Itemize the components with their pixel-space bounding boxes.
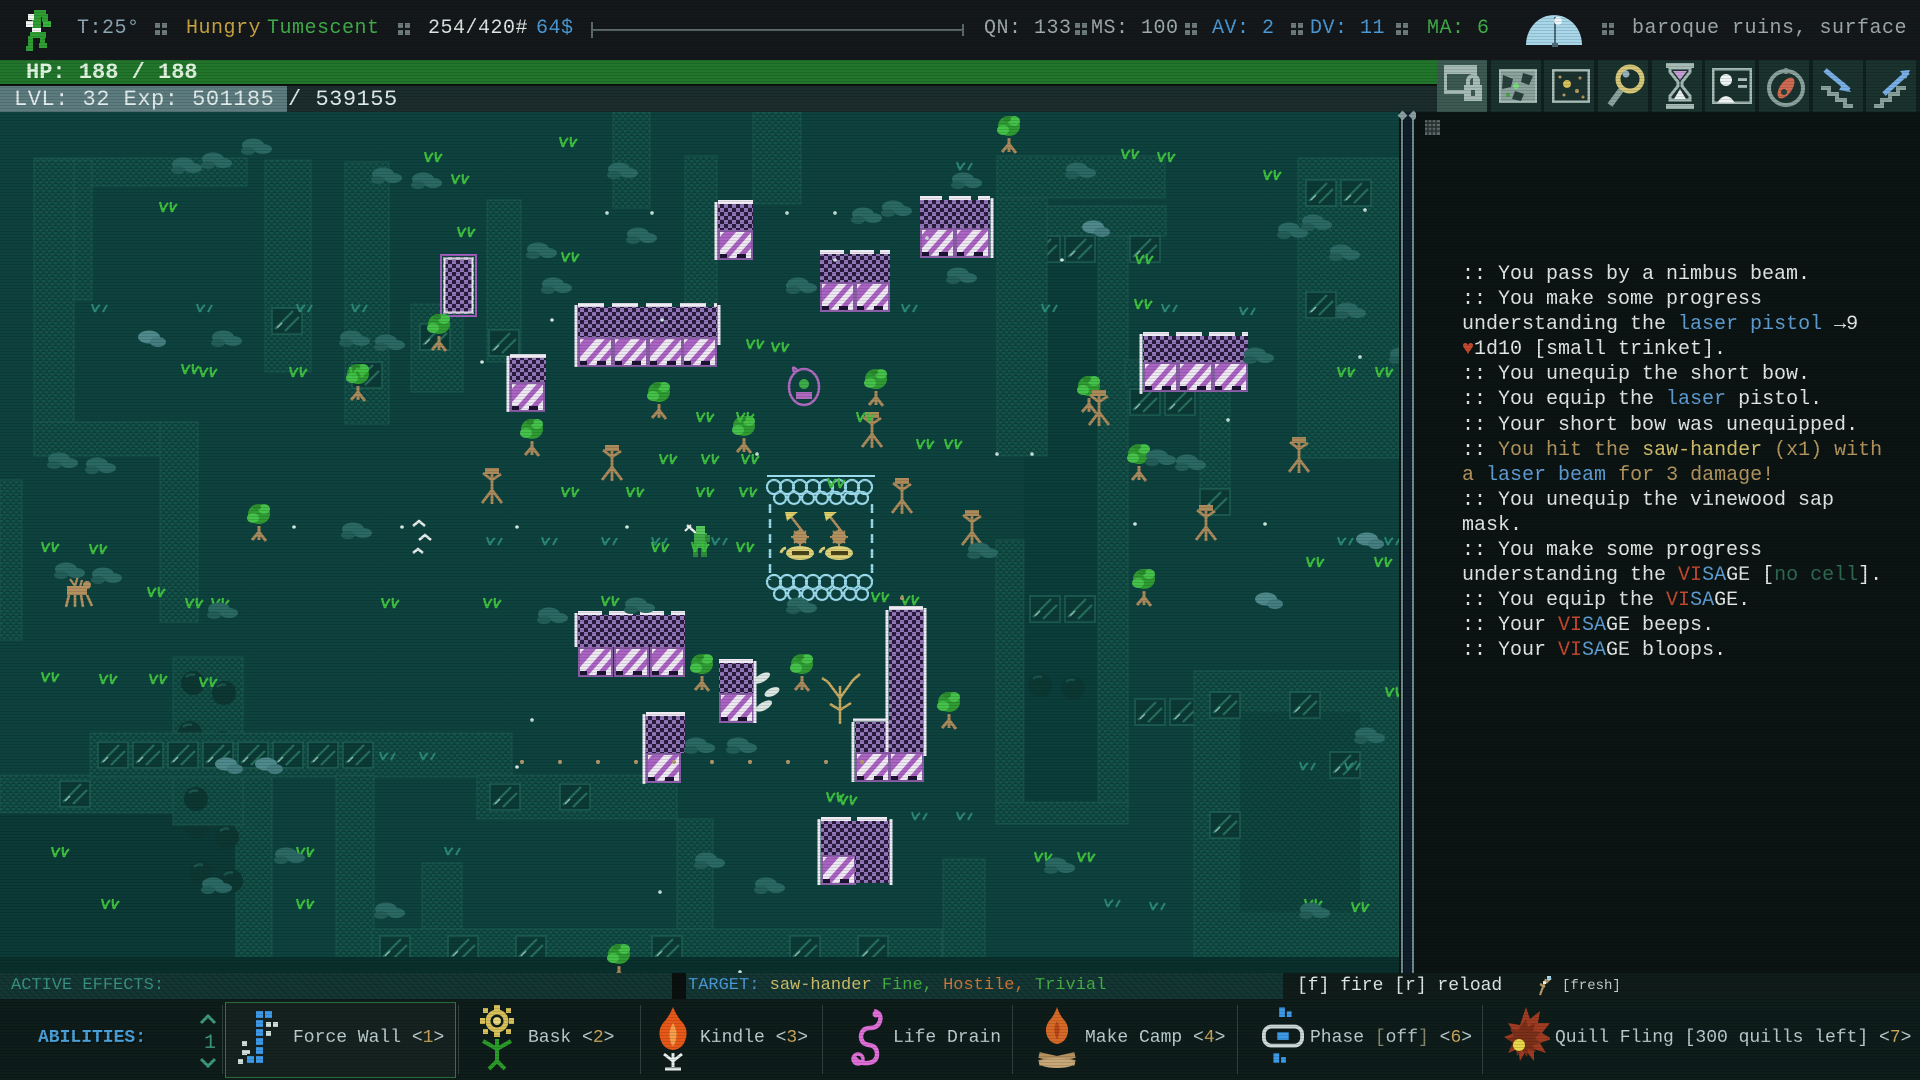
- svg-text:1: 1: [204, 1032, 216, 1055]
